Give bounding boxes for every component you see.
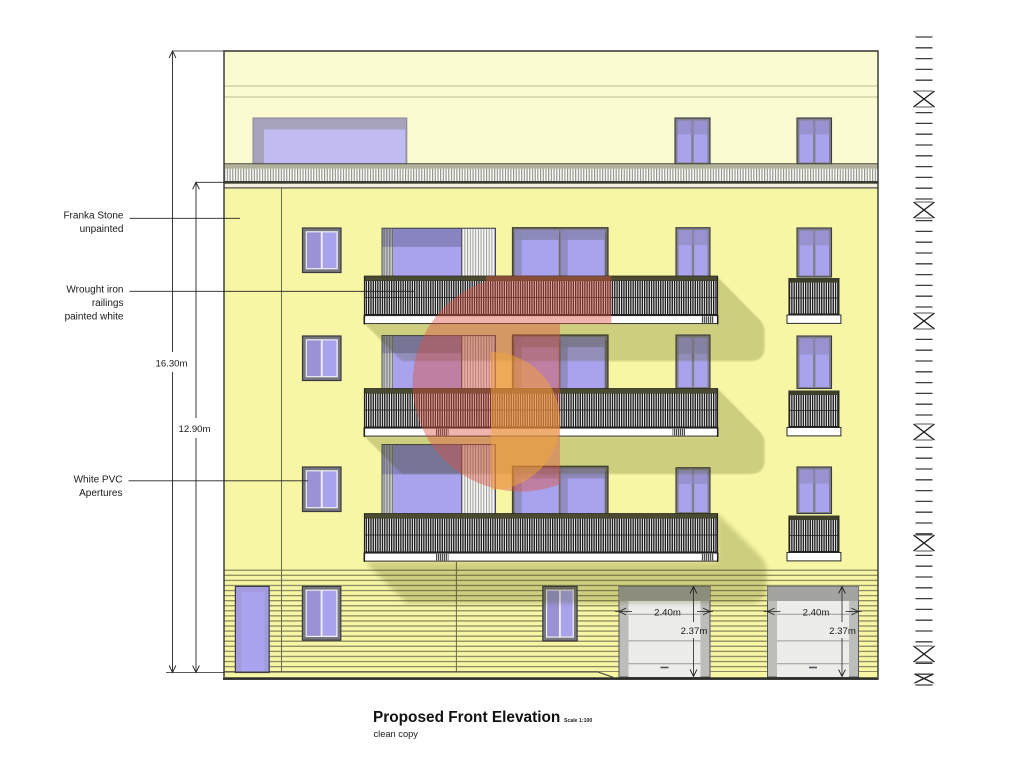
svg-text:clean copy: clean copy bbox=[374, 729, 419, 739]
svg-text:unpainted: unpainted bbox=[80, 224, 124, 235]
svg-text:Franka Stone: Franka Stone bbox=[63, 211, 123, 222]
svg-text:2.37m: 2.37m bbox=[681, 626, 708, 637]
svg-text:railings: railings bbox=[92, 298, 124, 309]
svg-text:2.40m: 2.40m bbox=[654, 607, 681, 618]
svg-text:painted white: painted white bbox=[65, 312, 124, 323]
svg-text:12.90m: 12.90m bbox=[179, 424, 211, 435]
svg-text:2.37m: 2.37m bbox=[829, 626, 856, 637]
svg-text:Apertures: Apertures bbox=[79, 488, 122, 499]
svg-text:Wrought iron: Wrought iron bbox=[66, 285, 123, 296]
svg-text:White PVC: White PVC bbox=[74, 475, 123, 486]
svg-text:Proposed Front Elevation: Proposed Front Elevation bbox=[373, 709, 560, 726]
svg-text:16.30m: 16.30m bbox=[156, 359, 188, 370]
svg-text:2.40m: 2.40m bbox=[803, 607, 830, 618]
svg-text:Scale 1:100: Scale 1:100 bbox=[564, 718, 592, 724]
